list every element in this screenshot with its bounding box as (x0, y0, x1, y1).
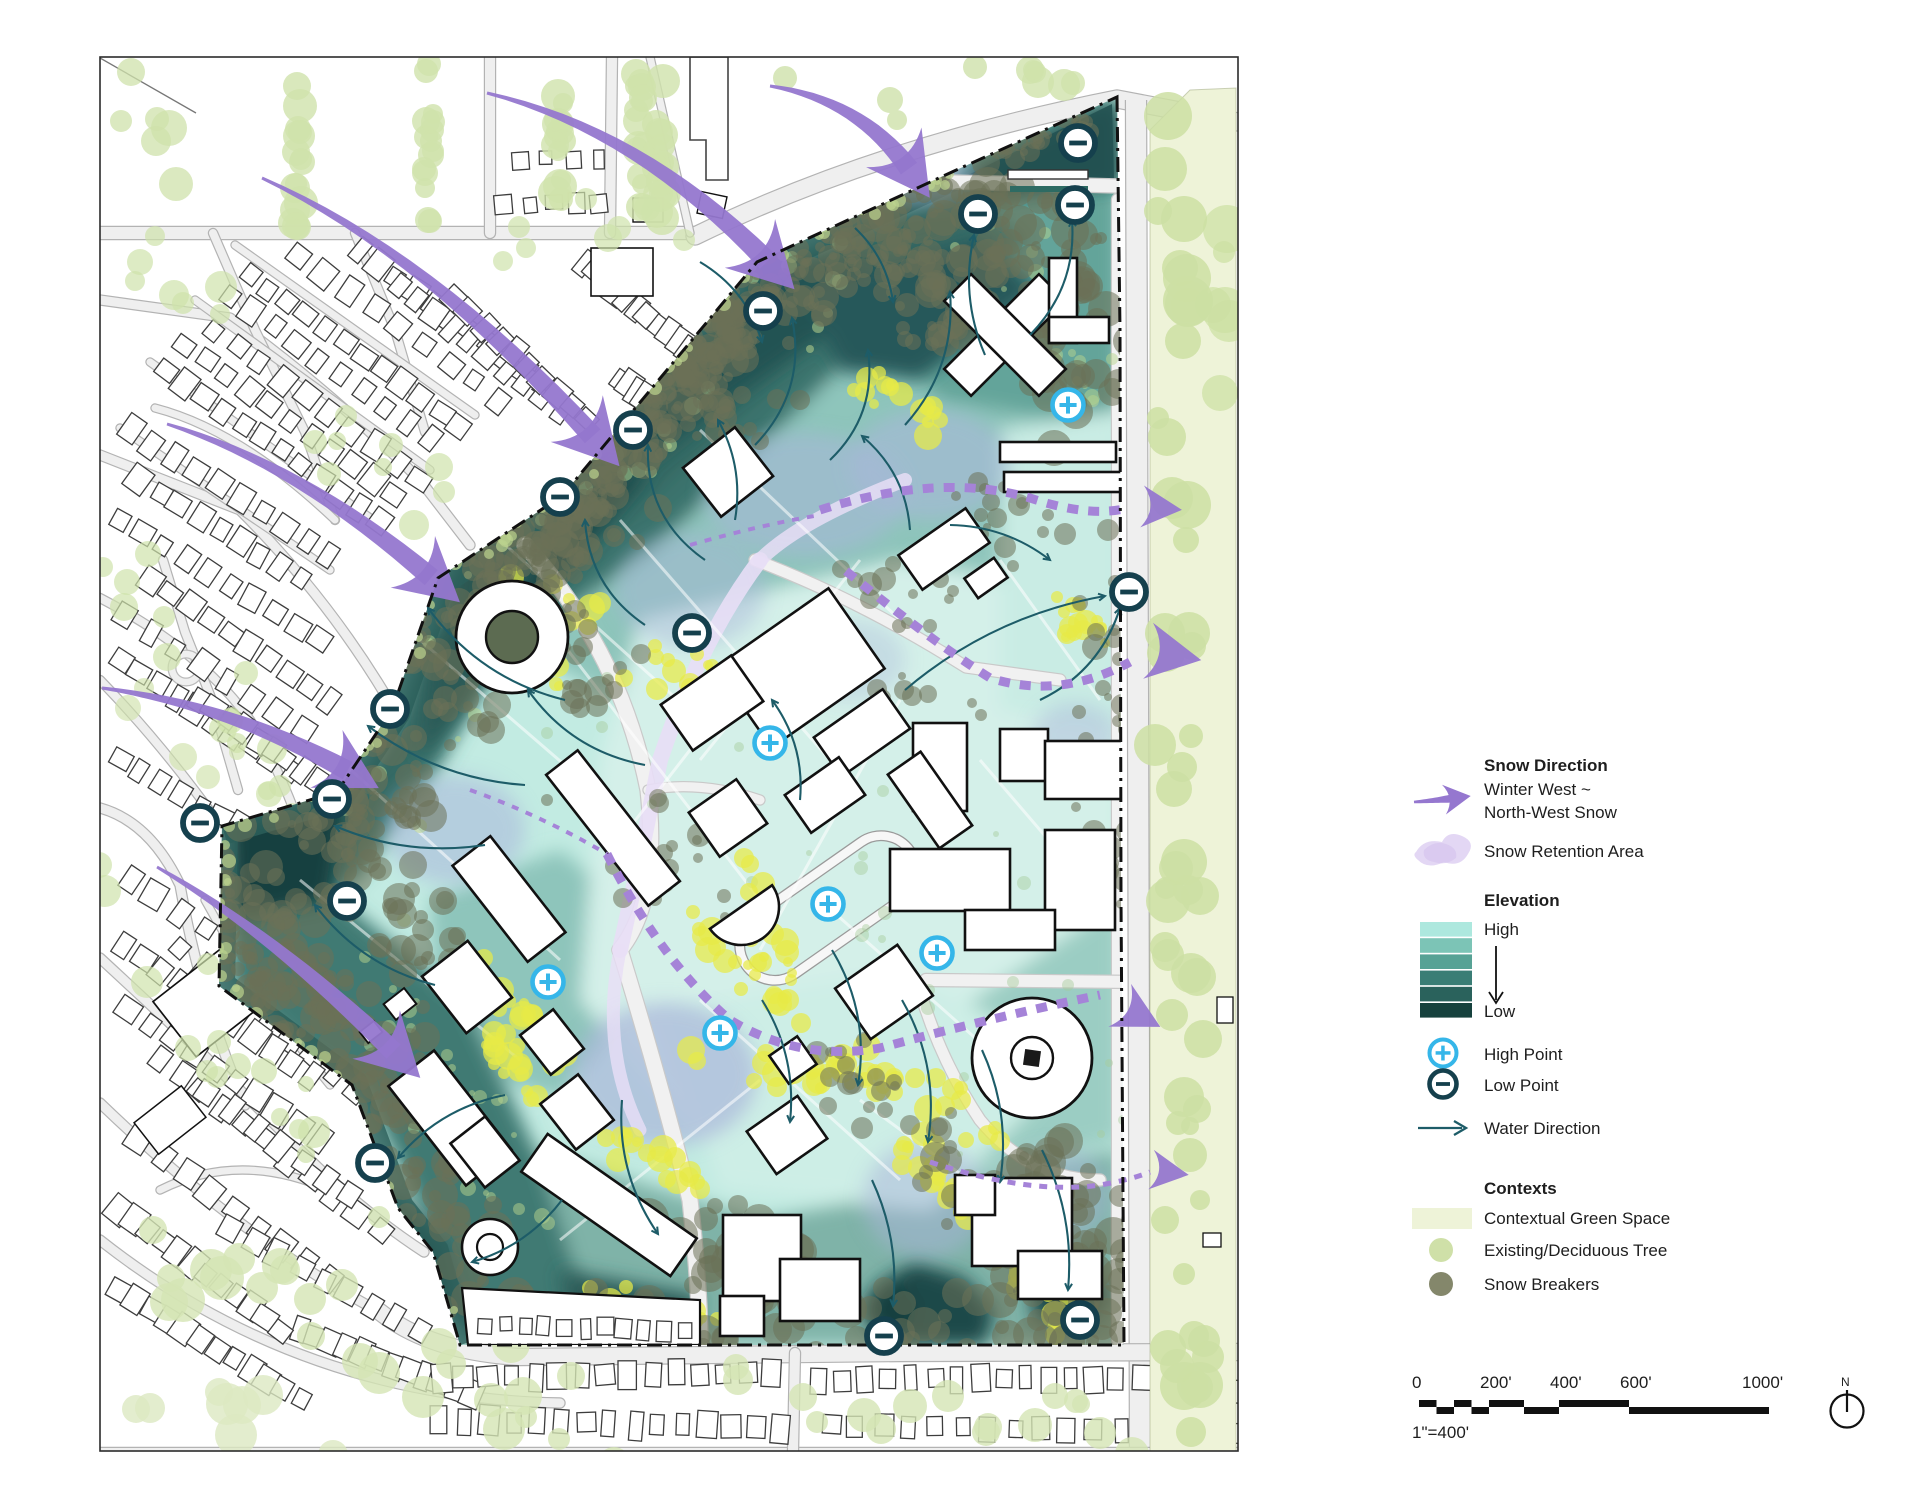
svg-text:N: N (1841, 1375, 1850, 1389)
svg-text:Existing/Deciduous Tree: Existing/Deciduous Tree (1484, 1241, 1667, 1260)
svg-text:Water Direction: Water Direction (1484, 1119, 1601, 1138)
svg-text:Snow Retention Area: Snow Retention Area (1484, 842, 1644, 861)
svg-text:400': 400' (1550, 1373, 1582, 1392)
svg-text:Winter West ~: Winter West ~ (1484, 780, 1591, 799)
svg-text:1000': 1000' (1742, 1373, 1783, 1392)
svg-text:North-West Snow: North-West Snow (1484, 803, 1618, 822)
svg-text:Snow Breakers: Snow Breakers (1484, 1275, 1599, 1294)
svg-text:Low: Low (1484, 1002, 1516, 1021)
svg-text:200': 200' (1480, 1373, 1512, 1392)
svg-text:1"=400': 1"=400' (1412, 1423, 1469, 1442)
svg-text:Contextual Green Space: Contextual Green Space (1484, 1209, 1670, 1228)
svg-text:600': 600' (1620, 1373, 1652, 1392)
svg-text:0: 0 (1412, 1373, 1421, 1392)
svg-text:Elevation: Elevation (1484, 891, 1560, 910)
svg-text:Snow Direction: Snow Direction (1484, 756, 1608, 775)
svg-text:Low Point: Low Point (1484, 1076, 1559, 1095)
svg-text:High: High (1484, 920, 1519, 939)
svg-text:High Point: High Point (1484, 1045, 1563, 1064)
svg-text:Contexts: Contexts (1484, 1179, 1557, 1198)
